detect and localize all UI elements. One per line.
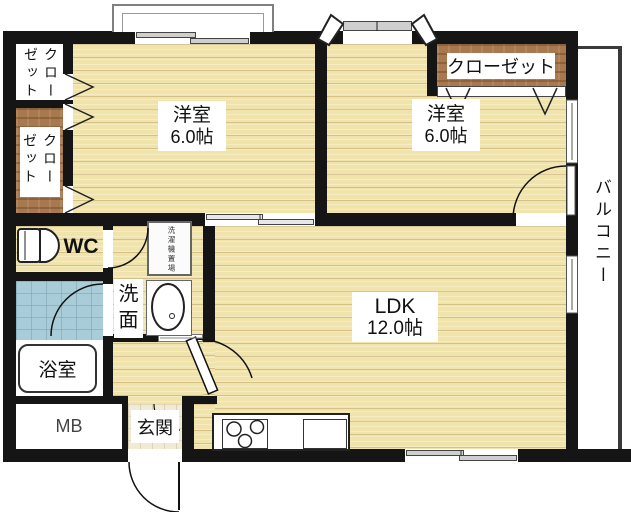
bedroom2-label: 洋室 6.0帖	[412, 99, 480, 151]
bedroom2-name: 洋室	[427, 104, 465, 125]
laundry-label: 洗濯機置場	[161, 226, 177, 274]
wall-right-1	[566, 31, 578, 100]
bathroom-label: 浴室	[18, 344, 97, 393]
closet-right-label: クローゼット	[447, 53, 555, 79]
ldk-name: LDK	[375, 295, 416, 319]
bedroom2-size: 6.0帖	[424, 126, 467, 146]
entrance-label: 玄関	[131, 410, 179, 443]
closet-left-top-label: クローゼット	[19, 47, 61, 103]
wall-top-left	[3, 31, 135, 44]
ldk-window-panel-left	[406, 450, 464, 456]
closet-right-door-strip	[437, 86, 566, 97]
bedroom1-label: 洋室 6.0帖	[158, 101, 226, 151]
wc-label: WC	[58, 232, 104, 262]
wall-top-right	[412, 31, 578, 44]
wall-right-3	[566, 313, 578, 462]
meter-box-label: MB	[16, 404, 122, 449]
ldk-label: LDK 12.0帖	[352, 292, 438, 342]
balcony-window-ldk	[567, 256, 578, 313]
wall-hall-ldk	[203, 226, 215, 342]
entrance-door-arc	[129, 462, 179, 512]
washbasin-counter	[146, 280, 192, 336]
bedroom2-window-bar	[343, 21, 412, 31]
wall-closet-bedroom1	[63, 44, 73, 213]
entrance-threshold	[128, 449, 182, 462]
wall-closet-right-side	[427, 44, 437, 96]
kitchen-stove	[222, 419, 268, 449]
wall-wc-bathroom	[3, 272, 113, 281]
wall-bathroom-mb	[3, 396, 128, 404]
kitchen-sink	[303, 419, 347, 449]
ldk-window-panel-right	[459, 455, 517, 461]
wall-bedroom-divider	[315, 44, 327, 226]
wall-mb-entrance	[122, 396, 128, 462]
bedroom1-name: 洋室	[173, 105, 211, 126]
bay-window-inner-frame	[122, 13, 264, 32]
bedroom1-ldk-panel-left	[206, 214, 263, 220]
wall-top-mid	[250, 31, 343, 44]
bedroom1-size: 6.0帖	[170, 127, 213, 147]
wall-hall-ldk-lower	[182, 396, 217, 404]
hall-ldk-door-gap-floor	[203, 342, 215, 398]
balcony-top-rail	[578, 46, 622, 49]
bedroom2-window-wall-gap	[343, 31, 412, 44]
wc-door-gap	[103, 230, 113, 268]
bathroom-tile	[16, 281, 103, 340]
wall-right-2	[566, 163, 578, 256]
bay-window-panel-right	[190, 38, 249, 44]
bedroom2-door-gap	[516, 213, 566, 226]
wall-bottom-left	[3, 449, 128, 462]
floor-plan: バルコニー クローゼット クローゼット クローゼット	[0, 0, 631, 512]
balcony-window-bedroom2	[567, 100, 578, 163]
closet-left-bottom-label: クローゼット	[20, 133, 60, 191]
bay-window-panel-left	[136, 32, 196, 38]
bedroom1-ldk-panel-right	[258, 219, 314, 225]
wall-entrance-ldk	[182, 404, 194, 462]
ldk-size: 12.0帖	[367, 318, 423, 339]
balcony-label: バルコニー	[586, 178, 614, 313]
balcony-outer-rail	[618, 46, 622, 449]
washroom-label: 洗面	[117, 283, 141, 337]
wall-bedrooms-bottom-mid	[315, 213, 516, 226]
wall-bedrooms-bottom-right	[566, 213, 578, 226]
